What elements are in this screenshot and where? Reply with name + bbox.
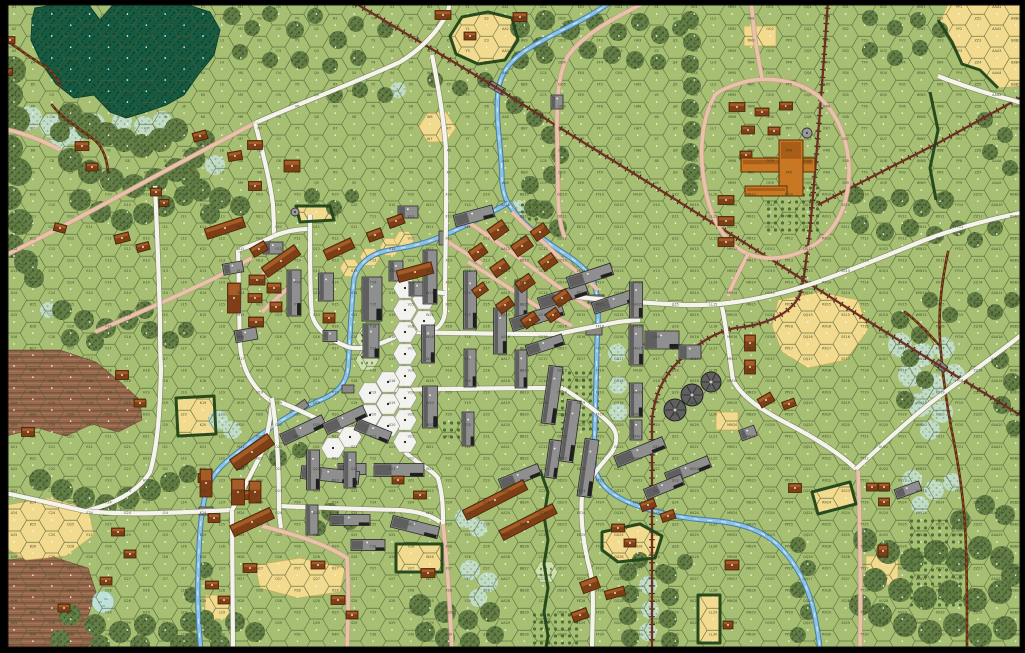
- stone-building: [307, 450, 320, 490]
- wooden-building: [745, 360, 756, 374]
- wooden-building: [249, 182, 262, 191]
- wooden-building: [768, 127, 780, 135]
- wooden-building: [86, 163, 98, 171]
- asl-map-board: A1A2A3A4A5A6A7A8A9A10A11A12A13A14A15A16A…: [0, 0, 1025, 653]
- roundhouse: [664, 399, 686, 421]
- wooden-building: [624, 539, 636, 547]
- stone-building: [323, 331, 337, 342]
- wooden-building: [879, 483, 890, 491]
- stone-building: [374, 464, 424, 477]
- wooden-building: [435, 11, 451, 20]
- roundhouse: [681, 384, 703, 406]
- wooden-building: [725, 560, 739, 570]
- wooden-building: [755, 108, 769, 116]
- wooden-building: [780, 102, 793, 110]
- wooden-building: [323, 313, 335, 323]
- wooden-building: [124, 550, 136, 558]
- wooden-building: [718, 217, 734, 226]
- wooden-building: [742, 126, 755, 134]
- stone-building: [629, 325, 643, 365]
- wooden-building: [248, 294, 262, 303]
- wooden-building: [134, 399, 146, 407]
- stone-building: [645, 331, 679, 349]
- wooden-building: [878, 545, 888, 557]
- wooden-building: [464, 32, 476, 40]
- stone-building: [462, 412, 474, 446]
- wooden-building: [227, 150, 242, 161]
- wooden-building: [22, 428, 35, 437]
- wooden-building: [513, 13, 527, 22]
- wooden-building: [206, 581, 219, 589]
- wooden-building: [723, 621, 733, 629]
- wooden-building: [270, 302, 282, 312]
- stone-building: [351, 540, 385, 551]
- wooden-building: [112, 528, 125, 536]
- wooden-building: [249, 481, 261, 503]
- wooden-building: [729, 103, 745, 112]
- wooden-building: [718, 196, 734, 205]
- wooden-building: [100, 577, 112, 585]
- stone-building: [306, 505, 318, 535]
- stone-building: [330, 515, 370, 526]
- stone-building: [630, 383, 643, 417]
- wooden-building: [267, 283, 281, 293]
- wooden-building: [159, 200, 169, 207]
- wooden-building: [151, 188, 162, 196]
- water-tower: [802, 128, 812, 138]
- wooden-building: [200, 469, 212, 497]
- wooden-building: [421, 569, 435, 578]
- wooden-building: [745, 335, 756, 351]
- stone-building: [363, 324, 379, 358]
- wooden-building: [208, 514, 220, 523]
- stone-building: [630, 420, 642, 440]
- stone-building: [494, 308, 507, 354]
- wooden-building: [331, 596, 345, 605]
- roundhouse: [701, 372, 721, 392]
- wooden-building: [346, 611, 358, 619]
- wooden-building: [58, 604, 70, 612]
- wooden-building: [218, 596, 230, 604]
- stone-building: [464, 349, 476, 387]
- stone-building: [551, 95, 563, 109]
- wooden-building: [249, 275, 265, 285]
- water-tower: [291, 208, 299, 216]
- stone-building: [423, 386, 438, 428]
- stone-building: [287, 270, 301, 316]
- stone-building: [464, 271, 477, 329]
- stone-building: [630, 282, 643, 318]
- wooden-building: [612, 524, 625, 532]
- wooden-building: [879, 498, 890, 506]
- wooden-building: [243, 564, 257, 573]
- wooden-building: [75, 142, 89, 151]
- wooden-building: [789, 484, 802, 493]
- wooden-building: [116, 371, 129, 380]
- stone-building: [344, 452, 356, 488]
- wooden-building: [284, 160, 300, 172]
- wooden-building: [248, 141, 263, 150]
- stone-building: [423, 250, 437, 304]
- hex-map-svg[interactable]: A1A2A3A4A5A6A7A8A9A10A11A12A13A14A15A16A…: [0, 0, 1025, 653]
- stone-building: [679, 345, 701, 359]
- stone-building: [362, 277, 382, 321]
- wooden-building: [414, 491, 427, 499]
- stone-building: [422, 325, 435, 363]
- wooden-building: [867, 483, 878, 491]
- stone-building: [319, 273, 334, 301]
- wooden-building: [249, 317, 264, 327]
- wooden-building: [392, 476, 404, 484]
- wooden-building: [228, 283, 241, 313]
- wooden-building: [311, 561, 325, 569]
- wooden-building: [232, 479, 245, 505]
- stone-building: [515, 350, 527, 388]
- wooden-building: [718, 238, 734, 247]
